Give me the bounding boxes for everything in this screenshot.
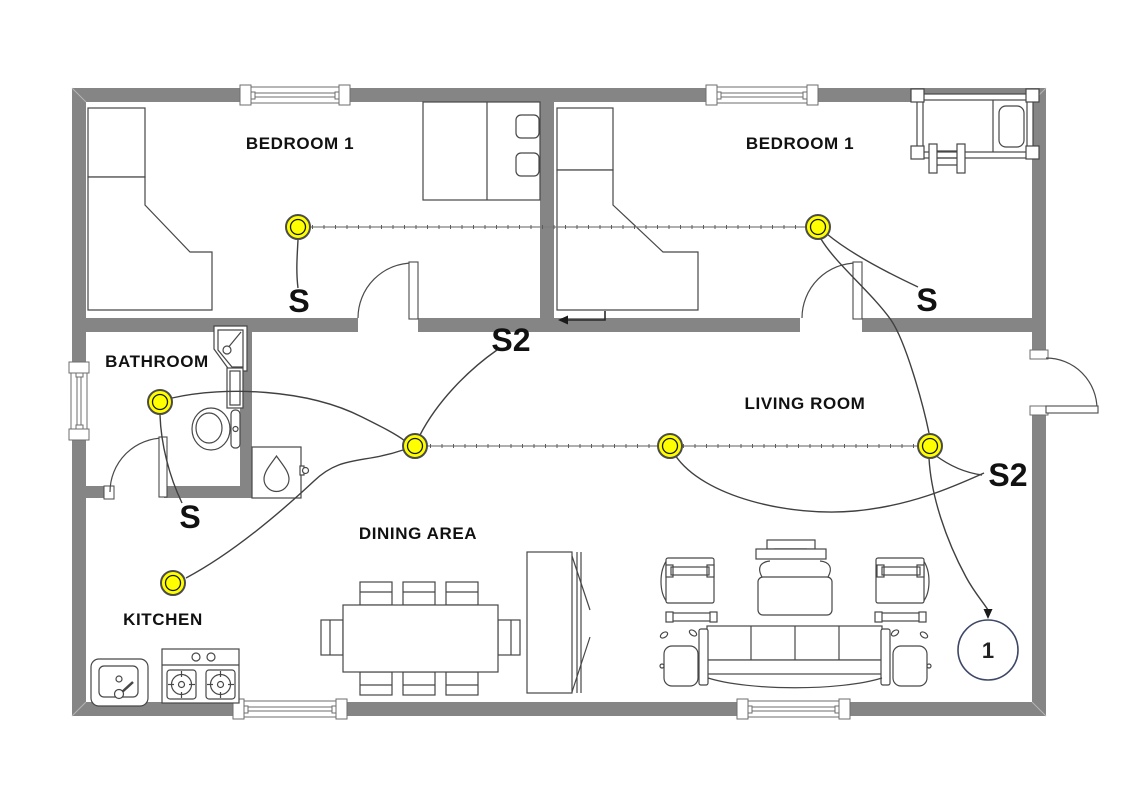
room-label-bedroom-right: BEDROOM 1 <box>746 134 854 153</box>
switch-label-bedroom-left: S <box>288 283 309 319</box>
armchair-left-icon <box>661 558 717 622</box>
ceiling-light-icon <box>806 215 830 239</box>
window-living-room <box>737 699 850 719</box>
tv-console-icon <box>756 540 826 559</box>
cabinet-icon <box>527 552 590 693</box>
room-label-bathroom: BATHROOM <box>105 352 209 371</box>
ceiling-light-icon <box>403 434 427 458</box>
wardrobe-bedroom-right <box>557 108 698 310</box>
shower-icon <box>214 326 247 371</box>
switch-label-bedroom-right: S <box>916 282 937 318</box>
wire-light6-s2 <box>935 455 982 475</box>
crib-bedroom-right <box>911 89 1039 173</box>
room-labels: BEDROOM 1 BEDROOM 1 BATHROOM LIVING ROOM… <box>105 134 865 629</box>
dining-set-icon <box>321 582 520 695</box>
door-bathroom <box>104 437 167 499</box>
ceiling-light-icon <box>161 571 185 595</box>
ceiling-light-icon <box>286 215 310 239</box>
room-label-kitchen: KITCHEN <box>123 610 203 629</box>
wall-bottom <box>72 702 1046 716</box>
switch-label-bathroom: S <box>179 499 200 535</box>
ceiling-light-icon <box>918 434 942 458</box>
home-run-circle: 1 <box>958 620 1018 680</box>
switch-label-s2-hall: S2 <box>491 322 530 358</box>
ceiling-light-icon <box>658 434 682 458</box>
wire-arrowhead-icon <box>984 609 993 619</box>
ceiling-light-icon <box>148 390 172 414</box>
door-front-entry <box>1030 350 1098 415</box>
door-bedroom-right <box>800 262 862 333</box>
sink-icon <box>91 659 148 706</box>
furniture <box>88 89 1039 706</box>
window-bedroom-left <box>240 85 350 105</box>
wall-hall-2 <box>418 318 800 332</box>
toilet-icon <box>192 368 243 450</box>
window-kitchen <box>233 699 347 719</box>
wire-light4-s2 <box>420 350 497 435</box>
window-bathroom <box>69 362 89 440</box>
armchair-center-icon <box>758 561 832 615</box>
wire-light5-s2 <box>675 455 984 512</box>
window-bedroom-right <box>706 85 818 105</box>
wire-light6-homerun <box>929 458 988 610</box>
water-heater-icon <box>252 447 309 498</box>
stove-icon <box>162 649 239 703</box>
home-run-label: 1 <box>982 638 994 663</box>
floor-plan-canvas: 1 BEDROOM 1 BEDROOM 1 BATHROOM LIVING RO… <box>0 0 1122 794</box>
wardrobe-bedroom-left <box>88 108 212 310</box>
room-label-bedroom-left: BEDROOM 1 <box>246 134 354 153</box>
wall-top <box>72 88 1046 102</box>
room-label-living-room: LIVING ROOM <box>745 394 866 413</box>
sofa-icon <box>699 626 890 688</box>
wall-bedroom-divider <box>540 102 554 318</box>
wire-light1-switch <box>297 240 298 288</box>
armchair-right-icon <box>875 558 929 622</box>
room-label-dining-area: DINING AREA <box>359 524 477 543</box>
bed-bedroom-left <box>423 102 540 200</box>
door-bedroom-left <box>358 262 418 333</box>
floor-plan-drawing: 1 BEDROOM 1 BEDROOM 1 BATHROOM LIVING RO… <box>0 0 1122 794</box>
switch-label-s2-living: S2 <box>988 457 1027 493</box>
wall-hall-3 <box>862 318 1032 332</box>
wire-light2-switch <box>827 234 918 287</box>
